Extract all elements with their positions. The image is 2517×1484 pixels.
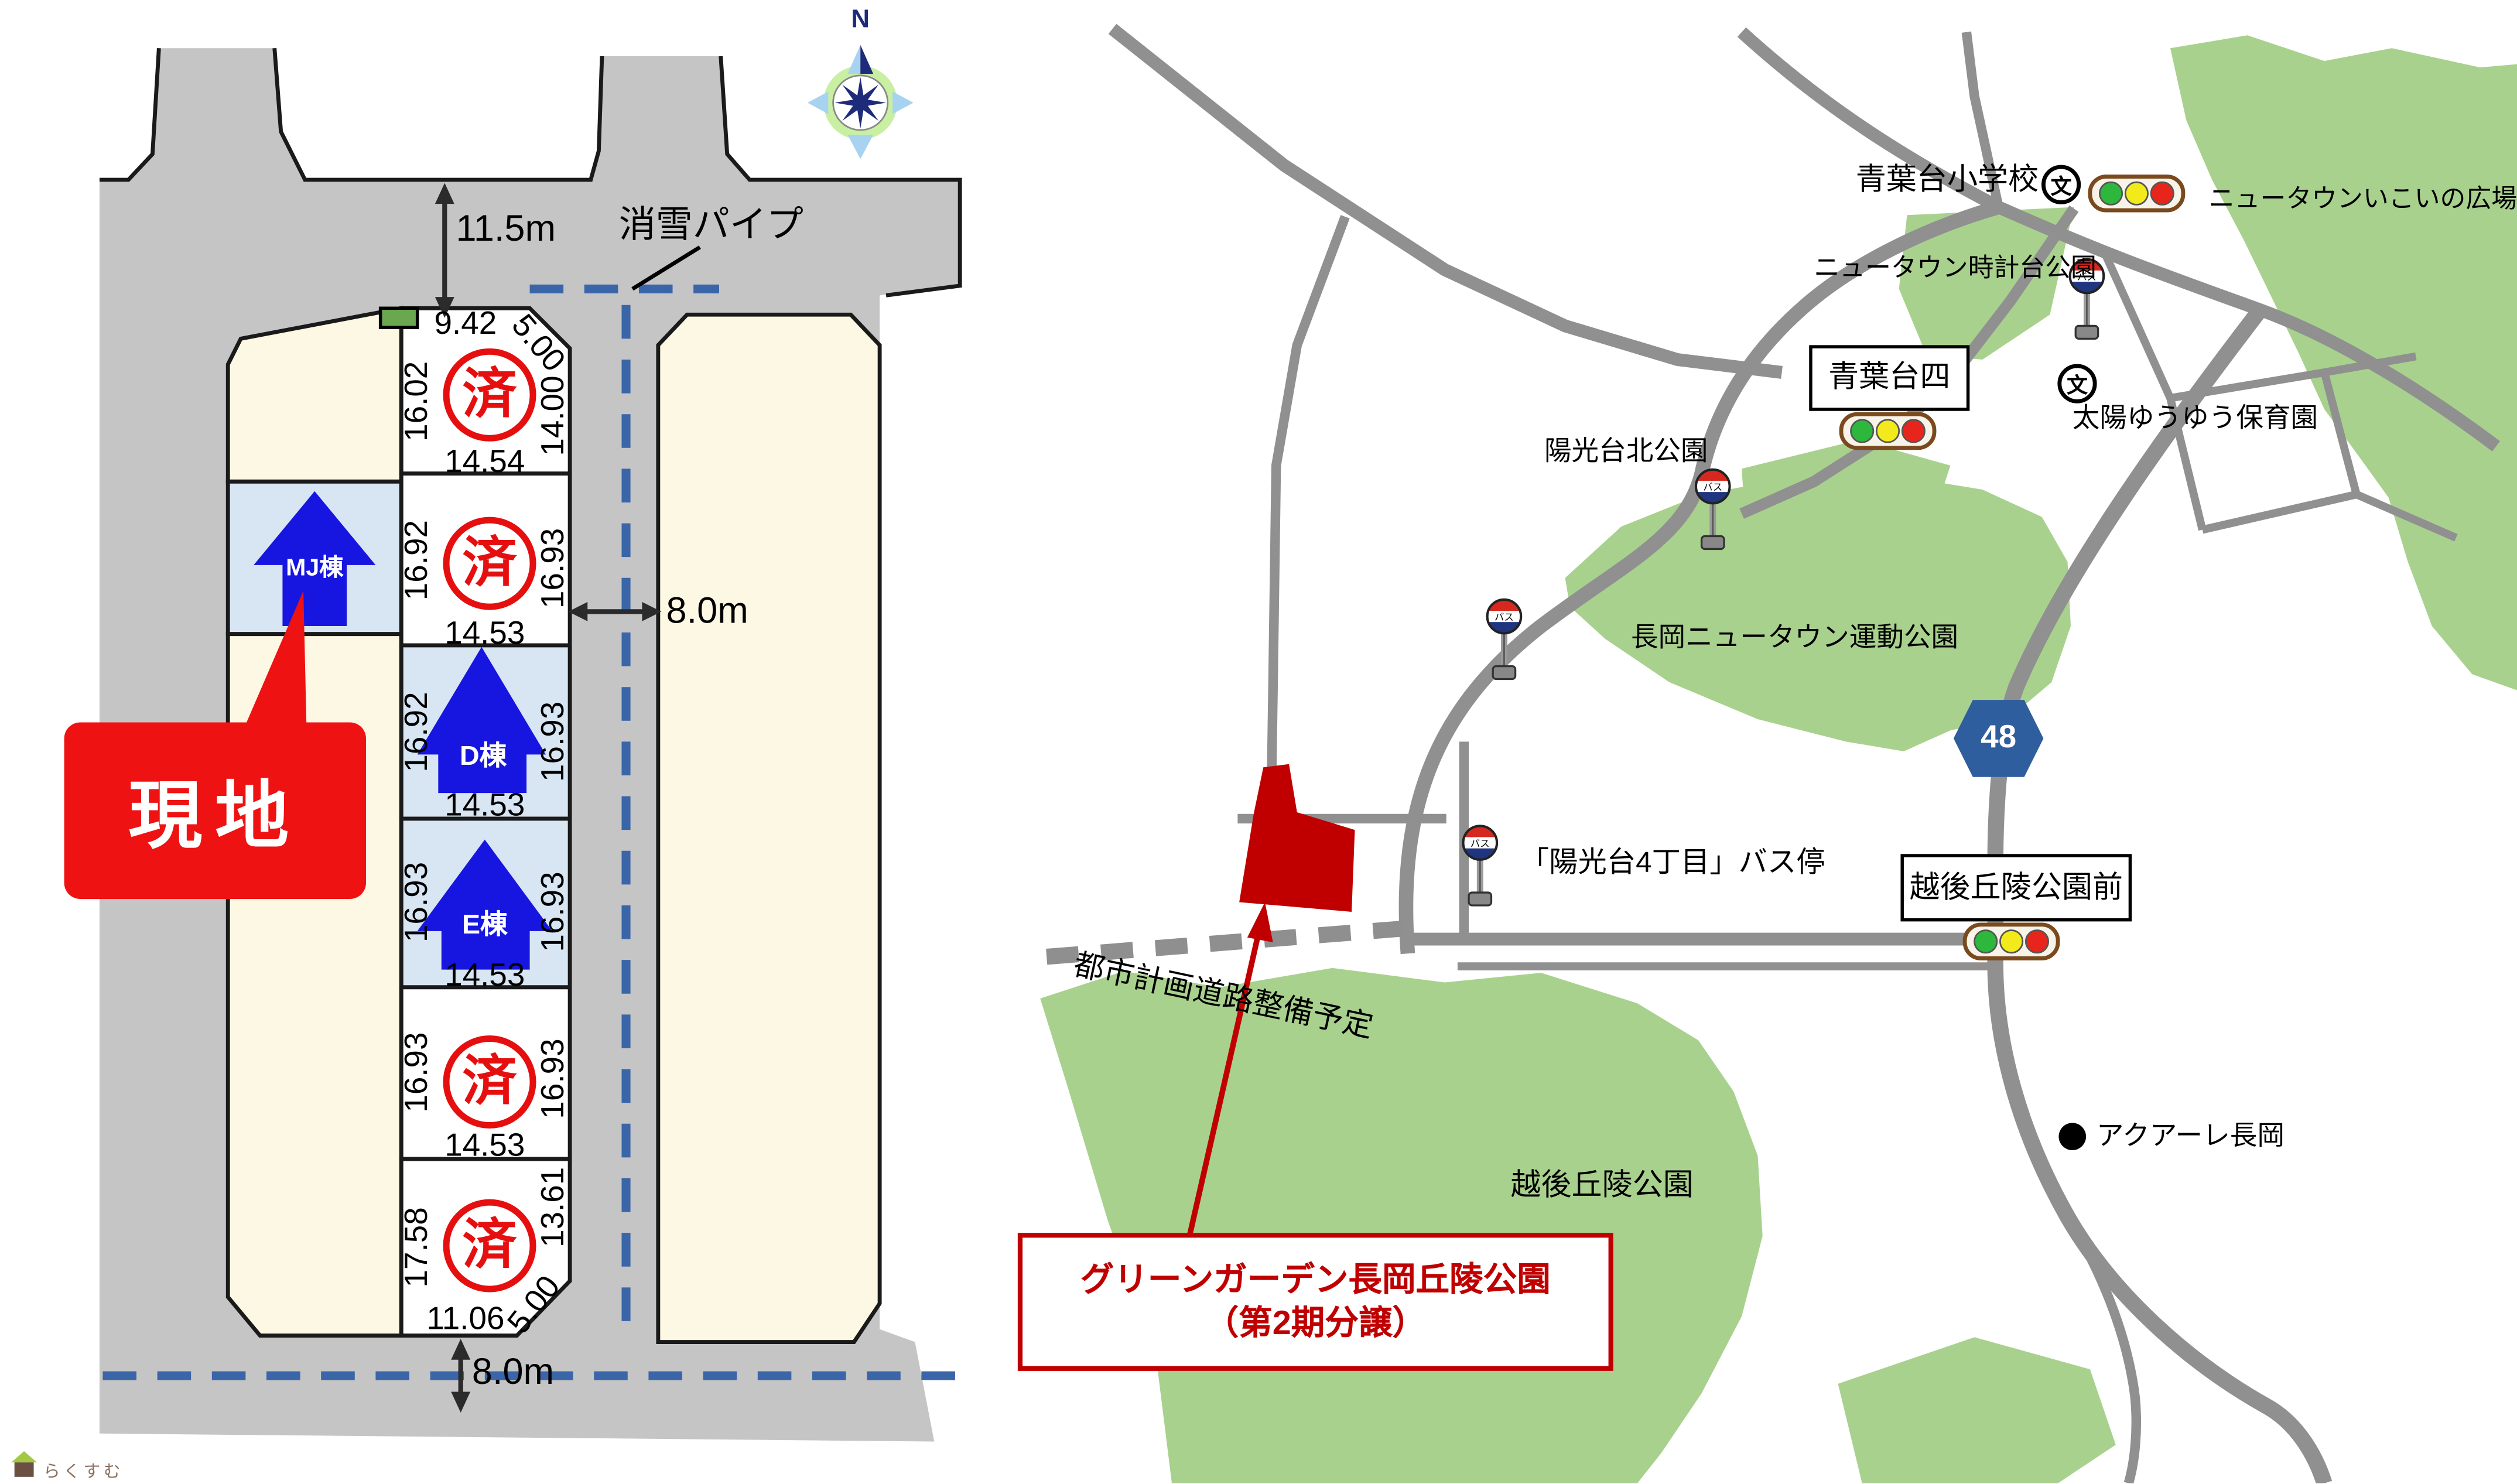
lot5-dim-left: 16.93 bbox=[401, 1032, 433, 1112]
bus-icon-text: バス bbox=[1470, 836, 1490, 850]
road-width-top-label: 11.5m bbox=[456, 210, 556, 247]
label-kyuryo-park: 越後丘陵公園 bbox=[1510, 1171, 1694, 1202]
development-callout-box: グリーンガーデン長岡丘陵公園 （第2期分譲） bbox=[1018, 1233, 1613, 1371]
site-location-red-plot bbox=[1239, 764, 1355, 912]
lotE-dim-bottom: 14.53 bbox=[444, 960, 525, 992]
planned-road-dashes bbox=[1047, 928, 1413, 956]
lot1-dim-left: 16.02 bbox=[401, 361, 433, 442]
lotE-dim-right: 16.93 bbox=[538, 871, 570, 952]
road-width-bottom-label: 8.0m bbox=[472, 1353, 554, 1390]
lot1-dim-top: 9.42 bbox=[435, 308, 497, 340]
lotD-dim-bottom: 14.53 bbox=[444, 790, 525, 822]
sign-aobadai-4: 青葉台四 bbox=[1809, 345, 1969, 411]
lot-right bbox=[658, 314, 880, 1342]
site-marker-box: 現地 bbox=[64, 722, 366, 899]
sign-kyuryo-park-front-label: 越後丘陵公園前 bbox=[1909, 873, 2123, 903]
bus-icon-text: バス bbox=[2077, 269, 2097, 283]
building-label-d: D棟 bbox=[460, 743, 507, 770]
development-callout-line2: （第2期分譲） bbox=[1205, 1302, 1426, 1346]
sold-stamp: 済 bbox=[443, 1035, 536, 1129]
compass-north-label: N bbox=[851, 8, 870, 34]
lotD-dim-left: 16.92 bbox=[401, 692, 433, 772]
bus-icon-text: バス bbox=[1703, 479, 1722, 494]
road-width-side-label: 8.0m bbox=[666, 592, 748, 629]
school-icon-char: 文 bbox=[2067, 368, 2088, 399]
lot-left-top bbox=[228, 308, 401, 481]
lot1-dim-bottom: 14.54 bbox=[444, 446, 525, 478]
lot5-dim-bottom: 14.53 bbox=[444, 1130, 525, 1162]
lot2-dim-left: 16.92 bbox=[401, 520, 433, 600]
label-taiyo-nursery: 太陽ゆうゆう保育園 bbox=[2073, 405, 2318, 432]
lotE-dim-left: 16.93 bbox=[401, 862, 433, 942]
sign-kyuryo-park-front: 越後丘陵公園前 bbox=[1900, 854, 2132, 921]
label-clock-tower-park: ニュータウン時計台公園 bbox=[1814, 257, 2096, 283]
lot6-dim-left: 17.58 bbox=[401, 1207, 433, 1287]
traffic-light-icon bbox=[2090, 177, 2183, 211]
label-aobadai-elementary: 青葉台小学校 bbox=[1856, 165, 2039, 196]
route-48-badge-label: 48 bbox=[1981, 720, 2016, 757]
lot5-dim-right: 16.93 bbox=[538, 1038, 570, 1119]
lot6-dim-right: 13.61 bbox=[538, 1167, 570, 1247]
label-yokodai4-bus-stop: 「陽光台4丁目」バス停 bbox=[1520, 847, 1825, 876]
compass-icon bbox=[808, 45, 914, 159]
lot2-dim-bottom: 14.53 bbox=[444, 618, 525, 650]
lot6-dim-bottom: 11.06 bbox=[426, 1304, 504, 1336]
lotD-dim-right: 16.93 bbox=[538, 702, 570, 782]
building-label-mj: MJ棟 bbox=[286, 556, 343, 580]
plan-green-marker bbox=[381, 308, 418, 327]
sold-stamp: 済 bbox=[443, 517, 536, 610]
traffic-light-icon bbox=[1841, 414, 1934, 448]
traffic-light-icon bbox=[1965, 925, 2058, 959]
lot1-dim-right: 14.00 bbox=[538, 375, 570, 456]
aquare-location-dot bbox=[2058, 1123, 2086, 1150]
sign-aobadai-4-label: 青葉台四 bbox=[1828, 363, 1950, 393]
sold-stamp: 済 bbox=[443, 1199, 536, 1292]
building-label-e: E棟 bbox=[462, 911, 508, 939]
watermark-house-icon bbox=[11, 1451, 37, 1477]
school-icon-char: 文 bbox=[2051, 169, 2072, 200]
label-sports-park: 長岡ニュータウン運動公園 bbox=[1631, 624, 1958, 651]
snow-pipe-label: 消雪パイプ bbox=[619, 206, 803, 243]
sold-stamp: 済 bbox=[443, 348, 536, 442]
development-callout-line1: グリーンガーデン長岡丘陵公園 bbox=[1080, 1258, 1551, 1302]
label-yokodai-north-park: 陽光台北公園 bbox=[1544, 437, 1708, 465]
lot2-dim-right: 16.93 bbox=[538, 528, 570, 608]
label-ikoi-plaza: ニュータウンいこいの広場 bbox=[2209, 188, 2517, 214]
bus-icon-text: バス bbox=[1495, 609, 1514, 624]
real-estate-flyer-map: N 11.5m 消雪パイプ 8.0m 8.0m 9.42 5.00 16.02 … bbox=[0, 0, 2517, 1483]
watermark-text: らくすむ bbox=[43, 1459, 124, 1483]
label-aquare-nagaoka: アクアーレ長岡 bbox=[2097, 1122, 2285, 1150]
